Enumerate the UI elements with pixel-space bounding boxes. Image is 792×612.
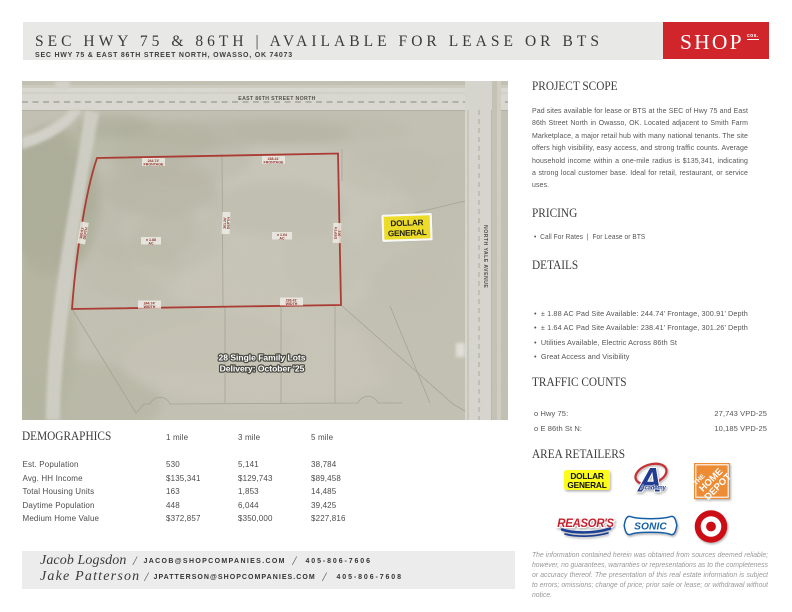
svg-text:28 Single Family Lots: 28 Single Family Lots bbox=[219, 353, 306, 363]
svg-text:REASOR'S: REASOR'S bbox=[557, 518, 614, 530]
svg-text:SONIC: SONIC bbox=[634, 522, 667, 533]
svg-text:GENERAL: GENERAL bbox=[567, 480, 606, 490]
svg-text:Delivery: October '25: Delivery: October '25 bbox=[220, 364, 305, 374]
svg-text:A: A bbox=[637, 462, 663, 500]
svg-text:Academy: Academy bbox=[639, 486, 666, 492]
